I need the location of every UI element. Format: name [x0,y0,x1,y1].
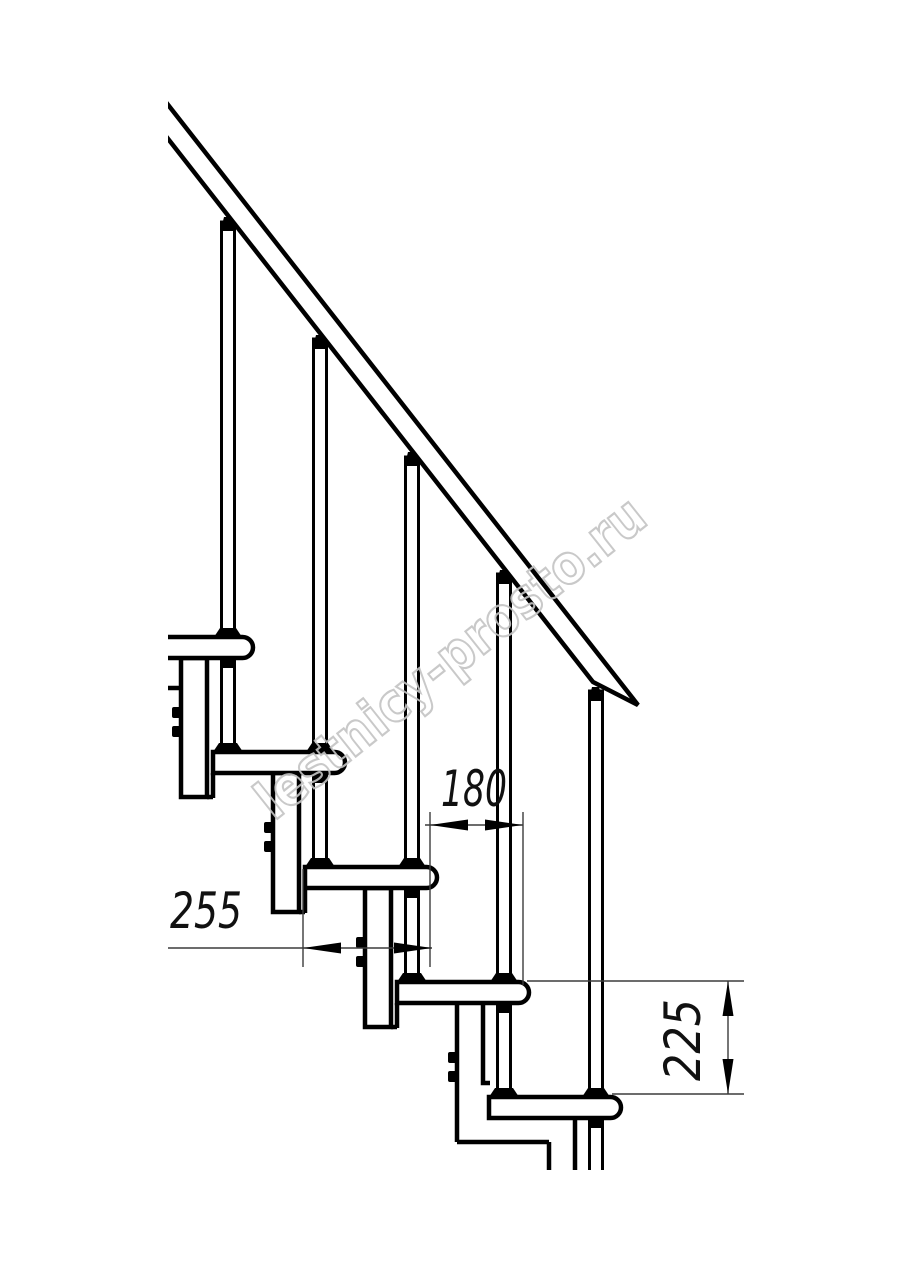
module-bolt [448,1071,457,1082]
module-bolt [172,726,181,737]
baluster-1 [214,217,242,637]
module-bolt [264,841,273,852]
support-post-3 [397,888,427,982]
staircase-elevation-drawing: 255 180 225 lestnicy-prosto.ru [0,0,914,1280]
module-column-1 [172,658,213,797]
module-bolt [264,822,273,833]
module-bolt [356,956,365,967]
module-bolt [356,937,365,948]
dim-label-step-rise: 225 [654,999,712,1081]
tread-1 [121,637,253,658]
module-bolt [448,1052,457,1063]
module-bolt [172,707,181,718]
support-post-1 [213,658,243,752]
dim-label-tread-depth: 255 [170,882,242,940]
module-column-5 [549,1118,575,1172]
module-column-3 [356,888,397,1027]
support-post-4 [489,1003,519,1097]
baluster-2 [306,335,334,752]
technical-drawing-page: 255 180 225 lestnicy-prosto.ru [0,0,914,1280]
tread-5 [489,1097,621,1118]
dim-label-step-run: 180 [441,760,507,818]
baluster-5 [582,687,610,1097]
support-post-5 [588,1118,604,1172]
